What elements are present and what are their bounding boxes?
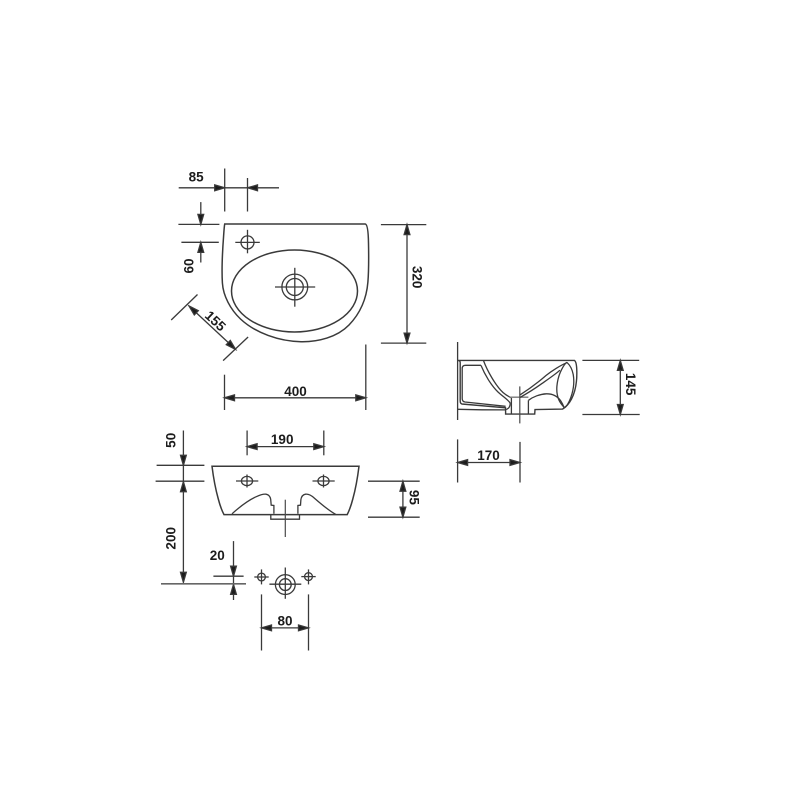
svg-text:400: 400 — [284, 384, 307, 399]
svg-text:85: 85 — [189, 170, 205, 185]
svg-text:320: 320 — [410, 266, 425, 289]
svg-text:20: 20 — [210, 548, 225, 563]
svg-text:170: 170 — [477, 448, 500, 463]
svg-text:190: 190 — [271, 432, 294, 447]
svg-text:95: 95 — [406, 490, 421, 506]
svg-text:200: 200 — [163, 527, 178, 550]
svg-text:50: 50 — [163, 433, 178, 448]
svg-text:60: 60 — [181, 258, 196, 273]
svg-text:80: 80 — [277, 614, 292, 629]
svg-text:145: 145 — [623, 373, 638, 396]
svg-text:155: 155 — [202, 308, 229, 335]
